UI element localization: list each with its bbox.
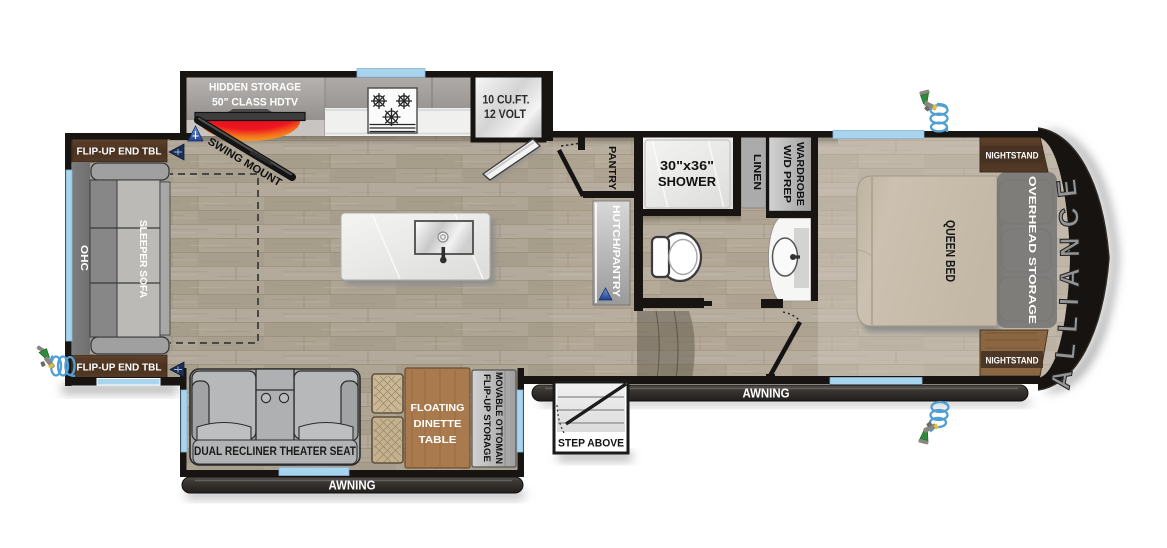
svg-text:PANTRY: PANTRY — [606, 146, 618, 190]
svg-text:OVERHEAD STORAGE: OVERHEAD STORAGE — [1026, 176, 1038, 324]
svg-text:HUTCH/PANTRY: HUTCH/PANTRY — [610, 205, 621, 297]
svg-text:DUAL RECLINER THEATER SEAT: DUAL RECLINER THEATER SEAT — [194, 446, 356, 458]
svg-text:LINEN: LINEN — [751, 154, 763, 190]
svg-text:STEP ABOVE: STEP ABOVE — [558, 438, 624, 450]
svg-text:TABLE: TABLE — [419, 434, 457, 446]
svg-text:SHOWER: SHOWER — [658, 175, 716, 189]
svg-text:12 VOLT: 12 VOLT — [484, 107, 527, 121]
svg-text:SLEEPER SOFA: SLEEPER SOFA — [137, 220, 149, 298]
svg-text:NIGHTSTAND: NIGHTSTAND — [986, 356, 1039, 367]
svg-text:MOVABLE OTTOMAN: MOVABLE OTTOMAN — [493, 372, 504, 464]
svg-text:FLIP-UP END TBL: FLIP-UP END TBL — [77, 147, 162, 158]
svg-text:FLIP-UP STORAGE: FLIP-UP STORAGE — [481, 374, 492, 462]
svg-text:AWNING: AWNING — [329, 479, 376, 493]
svg-text:10 CU.FT.: 10 CU.FT. — [483, 93, 530, 107]
svg-text:WARDROBE: WARDROBE — [794, 142, 805, 206]
svg-text:AWNING: AWNING — [743, 387, 790, 401]
svg-text:DINETTE: DINETTE — [414, 418, 462, 430]
svg-text:50" CLASS HDTV: 50" CLASS HDTV — [212, 97, 299, 109]
svg-text:FLIP-UP END TBL: FLIP-UP END TBL — [77, 363, 162, 374]
svg-text:HIDDEN STORAGE: HIDDEN STORAGE — [209, 82, 301, 94]
svg-text:W/D PREP: W/D PREP — [781, 145, 792, 203]
svg-text:OHC: OHC — [78, 245, 89, 271]
svg-text:30"x36": 30"x36" — [660, 159, 714, 173]
svg-text:QUEEN BED: QUEEN BED — [943, 220, 957, 282]
svg-text:NIGHTSTAND: NIGHTSTAND — [986, 151, 1039, 162]
svg-text:FLOATING: FLOATING — [411, 402, 465, 414]
